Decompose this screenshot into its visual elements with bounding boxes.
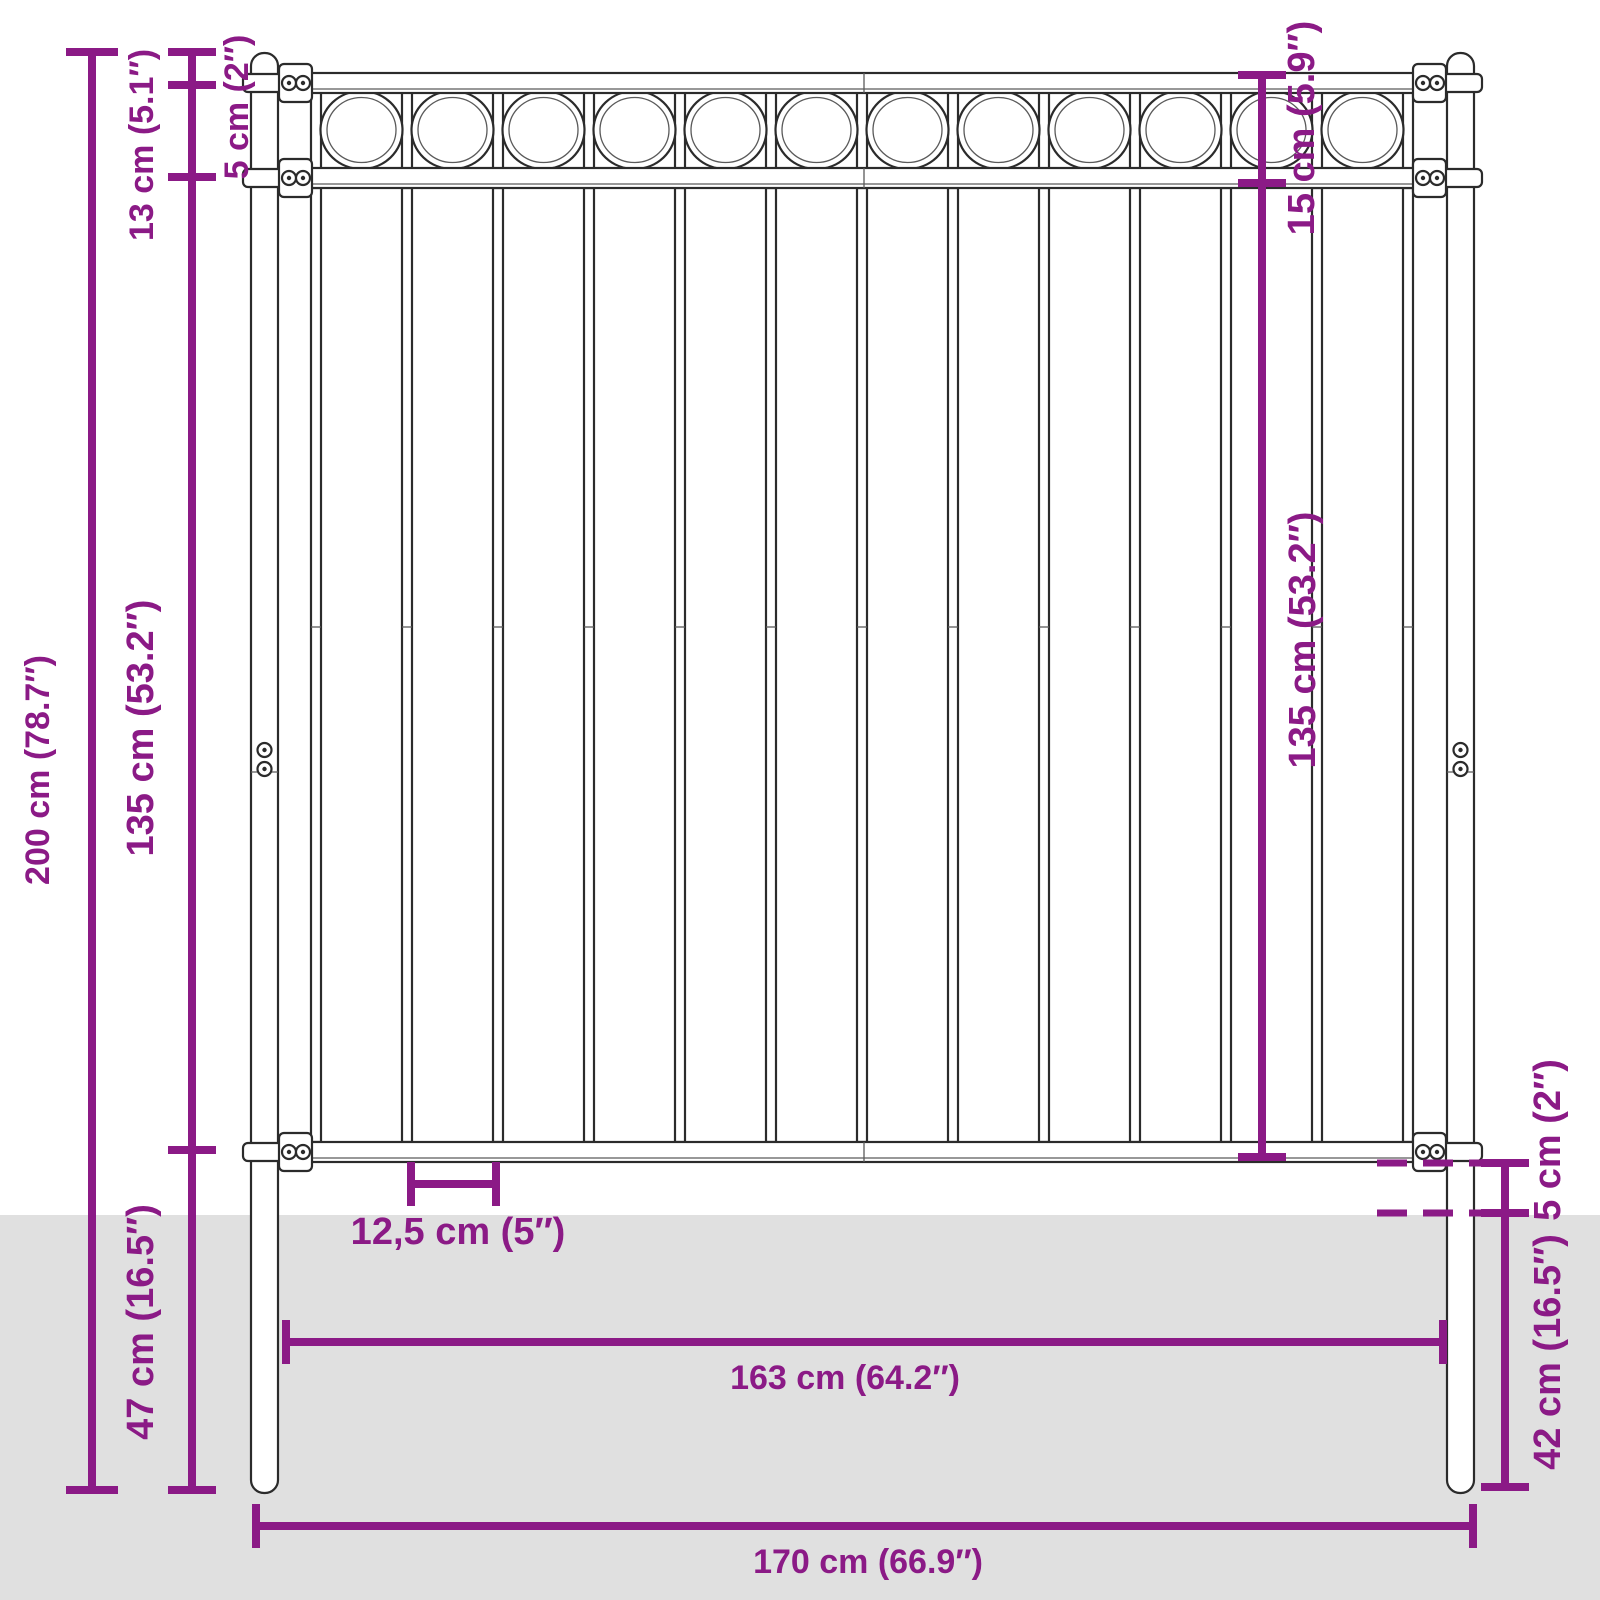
picket-bar bbox=[402, 188, 412, 1142]
label-ground-clearance: 5 cm (2″) bbox=[1529, 1059, 1567, 1221]
label-post-cap-offset: 5 cm (2″) bbox=[220, 35, 254, 180]
picket-group bbox=[311, 188, 1413, 1142]
screw-dot bbox=[287, 81, 291, 85]
fence-dimension-diagram: 200 cm (78.7″) 13 cm (5.1″) 5 cm (2″) 13… bbox=[0, 0, 1600, 1600]
screw-dot bbox=[1458, 748, 1462, 752]
screw-dot bbox=[287, 1150, 291, 1154]
label-picket-height-left: 135 cm (53.2″) bbox=[122, 600, 160, 857]
ornament-circle-outer bbox=[685, 91, 767, 169]
screw-dot bbox=[1435, 1150, 1439, 1154]
label-top-section-right: 15 cm (5.9″) bbox=[1283, 21, 1321, 236]
screw-dot bbox=[1421, 1150, 1425, 1154]
screw-dot bbox=[1458, 767, 1462, 771]
picket-bar bbox=[1221, 188, 1231, 1142]
screw-dot bbox=[262, 767, 266, 771]
label-panel-width: 163 cm (64.2″) bbox=[730, 1361, 960, 1395]
ornament-circle-outer bbox=[1322, 91, 1404, 169]
screw-dot bbox=[262, 748, 266, 752]
screw-dot bbox=[1435, 81, 1439, 85]
ornament-circle-outer bbox=[412, 91, 494, 169]
screw-dot bbox=[301, 176, 305, 180]
picket-bar bbox=[1403, 188, 1413, 1142]
dimension-right-stack bbox=[1238, 75, 1286, 1157]
ornament-circle-outer bbox=[503, 91, 585, 169]
ornament-circle-outer bbox=[1140, 91, 1222, 169]
picket-bar bbox=[493, 188, 503, 1142]
post-clamp-band bbox=[1442, 74, 1482, 92]
picket-bar bbox=[857, 188, 867, 1142]
post-clamp-band bbox=[243, 1143, 283, 1161]
post-clamp-band bbox=[1442, 1143, 1482, 1161]
label-underground-depth: 42 cm (16.5″) bbox=[1529, 1234, 1567, 1470]
screw-dot bbox=[301, 81, 305, 85]
screw-dot bbox=[1421, 81, 1425, 85]
screw-dot bbox=[1435, 176, 1439, 180]
ornament-circle-outer bbox=[321, 91, 403, 169]
screw-dot bbox=[301, 1150, 305, 1154]
picket-bar bbox=[584, 188, 594, 1142]
ornament-circle-outer bbox=[1049, 91, 1131, 169]
picket-bar bbox=[1130, 188, 1140, 1142]
post-clamp-band bbox=[1442, 169, 1482, 187]
label-below-panel: 47 cm (16.5″) bbox=[122, 1204, 160, 1440]
label-total-width: 170 cm (66.9″) bbox=[753, 1545, 983, 1579]
picket-bar bbox=[948, 188, 958, 1142]
label-picket-height-right: 135 cm (53.2″) bbox=[1284, 512, 1322, 769]
label-total-height: 200 cm (78.7″) bbox=[21, 655, 55, 885]
ornament-band bbox=[311, 90, 1413, 170]
picket-bar bbox=[311, 188, 321, 1142]
dimension-picket-spacing bbox=[411, 1162, 496, 1206]
ornament-circle-outer bbox=[776, 91, 858, 169]
ornament-circle-outer bbox=[867, 91, 949, 169]
picket-bar bbox=[1039, 188, 1049, 1142]
label-picket-spacing: 12,5 cm (5″) bbox=[351, 1213, 566, 1251]
ornament-circle-outer bbox=[958, 91, 1040, 169]
ornament-circle-outer bbox=[594, 91, 676, 169]
picket-bar bbox=[675, 188, 685, 1142]
screw-dot bbox=[1421, 176, 1425, 180]
screw-dot bbox=[287, 176, 291, 180]
label-ornament-band-height: 13 cm (5.1″) bbox=[125, 49, 159, 241]
picket-bar bbox=[766, 188, 776, 1142]
